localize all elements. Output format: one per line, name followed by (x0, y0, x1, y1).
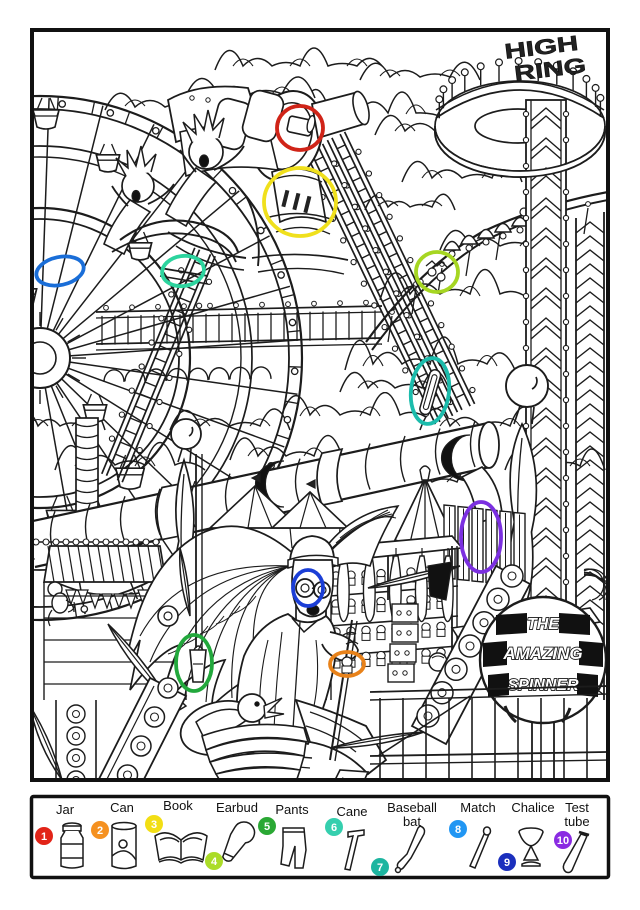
svg-text:2: 2 (97, 825, 103, 837)
svg-text:tube: tube (564, 814, 589, 829)
svg-text:Jar: Jar (56, 802, 75, 817)
svg-text:9: 9 (504, 857, 510, 869)
svg-text:6: 6 (331, 822, 337, 834)
svg-text:Test: Test (565, 800, 589, 815)
svg-text:SPINNER: SPINNER (507, 677, 579, 694)
svg-text:Cane: Cane (336, 804, 367, 819)
svg-text:Book: Book (163, 798, 193, 813)
svg-text:3: 3 (151, 819, 157, 831)
svg-text:AMAZING: AMAZING (502, 644, 582, 663)
svg-text:10: 10 (557, 835, 569, 847)
svg-text:8: 8 (455, 824, 461, 836)
svg-text:Baseball: Baseball (387, 800, 437, 815)
svg-text:1: 1 (41, 831, 47, 843)
svg-text:Earbud: Earbud (216, 800, 258, 815)
svg-text:Pants: Pants (275, 802, 309, 817)
svg-text:THE: THE (527, 616, 560, 633)
svg-text:5: 5 (264, 821, 270, 833)
svg-text:7: 7 (377, 862, 383, 874)
svg-text:Can: Can (110, 800, 134, 815)
svg-text:Match: Match (460, 800, 495, 815)
svg-text:4: 4 (211, 856, 218, 868)
svg-text:Chalice: Chalice (511, 800, 554, 815)
